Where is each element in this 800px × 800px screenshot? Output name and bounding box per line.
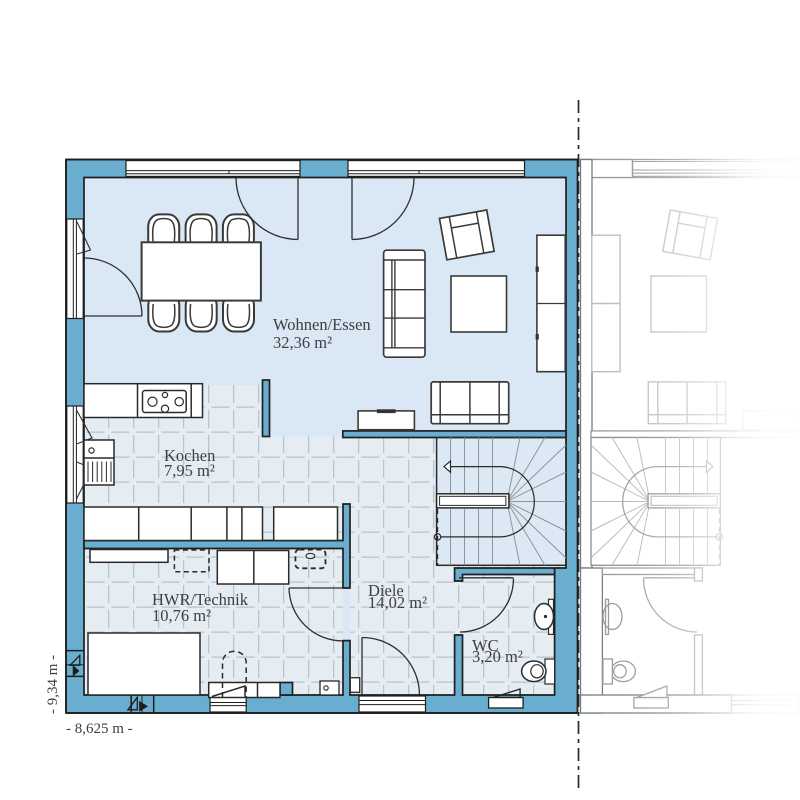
svg-text:10,76 m²: 10,76 m²: [152, 606, 211, 625]
svg-text:7,95 m²: 7,95 m²: [164, 461, 215, 480]
svg-text:- 9,34 m -: - 9,34 m -: [45, 655, 61, 714]
svg-text:Wohnen/Essen: Wohnen/Essen: [273, 315, 371, 334]
svg-text:- 8,625 m -: - 8,625 m -: [66, 721, 133, 737]
svg-text:14,02 m²: 14,02 m²: [368, 593, 427, 612]
svg-text:32,36 m²: 32,36 m²: [273, 333, 332, 352]
svg-text:3,20 m²: 3,20 m²: [472, 647, 523, 666]
